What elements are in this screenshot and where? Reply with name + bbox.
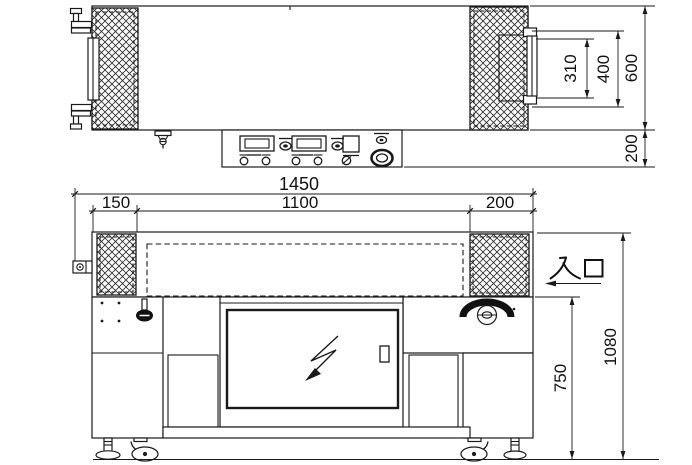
inlet-direction-arrow bbox=[545, 281, 601, 287]
bottom-clamp-fitting bbox=[71, 105, 92, 130]
dim-1080-label: 1080 bbox=[601, 328, 620, 366]
dim-400: 400 bbox=[594, 31, 620, 107]
front-view: 1450 150 1100 200 bbox=[71, 174, 659, 461]
dim-1450-label: 1450 bbox=[279, 174, 319, 194]
dim-1080: 1080 bbox=[601, 233, 625, 459]
machine-technical-drawing: 入口 bbox=[0, 0, 692, 465]
drawing-svg: 310 400 600 200 bbox=[0, 0, 692, 465]
right-caster-wheel bbox=[461, 438, 488, 461]
top-clamp-fitting bbox=[71, 9, 92, 34]
right-clip-bottom bbox=[524, 96, 537, 105]
left-leg bbox=[92, 297, 163, 438]
left-roller-block-top bbox=[88, 8, 138, 129]
control-panel bbox=[222, 130, 402, 167]
dim-150-label: 150 bbox=[102, 193, 130, 212]
dim-750-label: 750 bbox=[551, 364, 570, 392]
left-opening bbox=[168, 355, 218, 427]
right-leg bbox=[463, 353, 533, 438]
front-right-dimensions: 750 1080 bbox=[535, 233, 631, 459]
left-roller-block-front bbox=[97, 234, 136, 295]
right-opening bbox=[409, 355, 458, 427]
top-view-body bbox=[92, 6, 528, 130]
front-body bbox=[92, 232, 533, 297]
dim-200-top-label: 200 bbox=[622, 134, 641, 162]
dim-310: 310 bbox=[561, 39, 589, 98]
right-leveling-foot bbox=[504, 438, 526, 459]
left-leveling-foot bbox=[96, 438, 120, 459]
top-view: 310 400 600 200 bbox=[71, 6, 656, 167]
drain-fitting bbox=[155, 131, 171, 149]
inlet-label bbox=[545, 258, 603, 287]
side-connector bbox=[73, 261, 92, 273]
right-clip-top bbox=[524, 28, 537, 37]
base-rail bbox=[163, 427, 470, 438]
dim-750: 750 bbox=[551, 297, 574, 459]
left-caster-wheel bbox=[131, 438, 158, 461]
dim-200-top-view: 200 bbox=[622, 130, 647, 167]
dim-200-front-label: 200 bbox=[486, 193, 514, 212]
dim-600: 600 bbox=[622, 6, 647, 130]
dim-1100-label: 1100 bbox=[282, 193, 319, 212]
dim-310-label: 310 bbox=[561, 54, 580, 82]
right-roller-block-top bbox=[470, 7, 537, 130]
right-roller-block-front bbox=[470, 234, 529, 296]
dim-600-label: 600 bbox=[622, 54, 641, 82]
electrical-cabinet bbox=[220, 297, 403, 427]
dim-400-label: 400 bbox=[594, 55, 613, 83]
